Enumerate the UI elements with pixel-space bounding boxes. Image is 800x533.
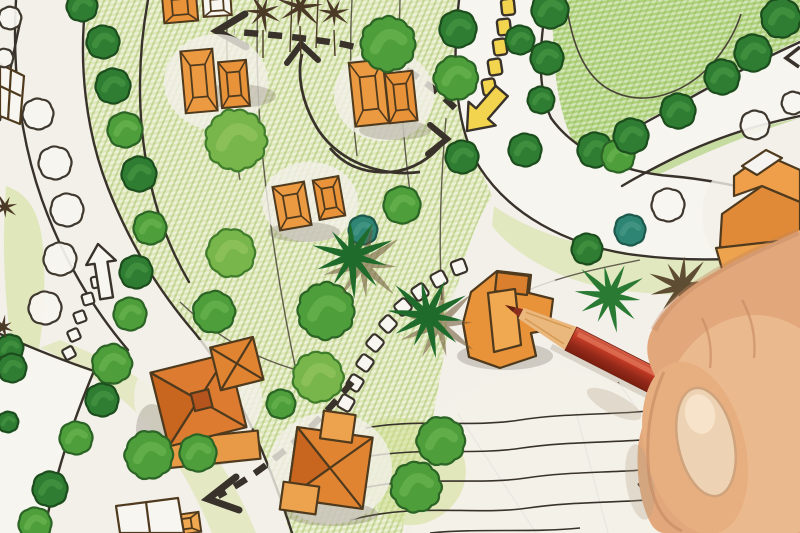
house-a2 bbox=[218, 60, 250, 108]
tree-outline-symbol bbox=[28, 291, 61, 324]
yellow-dash bbox=[487, 58, 502, 76]
tree-symbol bbox=[528, 87, 555, 114]
yellow-dash bbox=[501, 0, 516, 16]
tree-symbol bbox=[32, 471, 67, 506]
house-c2 bbox=[313, 176, 346, 220]
tree-symbol bbox=[433, 56, 478, 100]
tree-symbol bbox=[704, 59, 739, 94]
tree-symbol bbox=[267, 390, 296, 419]
tree-symbol bbox=[571, 233, 602, 264]
house-top-edge bbox=[162, 0, 198, 23]
tree-symbol bbox=[383, 186, 420, 223]
tree-symbol bbox=[95, 68, 130, 103]
tree-outline-symbol bbox=[741, 111, 770, 140]
house-top-edge-outline bbox=[202, 0, 231, 17]
tree-symbol bbox=[0, 354, 26, 383]
tree-symbol bbox=[445, 140, 478, 173]
paver-square bbox=[450, 258, 468, 276]
tree-symbol bbox=[734, 34, 771, 71]
tree-symbol bbox=[530, 41, 563, 74]
tree-symbol bbox=[121, 156, 156, 191]
tree-symbol bbox=[613, 118, 648, 153]
tree-symbol bbox=[66, 0, 97, 22]
house-b2 bbox=[384, 71, 417, 124]
tree-symbol bbox=[119, 255, 152, 288]
tree-symbol bbox=[506, 26, 535, 55]
tree-symbol bbox=[133, 211, 166, 244]
building-outline-left bbox=[0, 64, 24, 124]
tree-outline-symbol bbox=[43, 242, 76, 275]
tree-symbol bbox=[761, 0, 800, 38]
tree-outline-symbol bbox=[0, 7, 21, 30]
tree-symbol bbox=[360, 16, 415, 72]
tree-symbol bbox=[113, 297, 146, 330]
tree-symbol bbox=[86, 25, 119, 58]
tree-symbol bbox=[293, 352, 344, 403]
tree-symbol bbox=[18, 507, 51, 533]
tree-symbol bbox=[508, 133, 541, 166]
site-plan-photo bbox=[0, 0, 800, 533]
tree-symbol bbox=[107, 112, 142, 147]
tree-symbol bbox=[391, 462, 442, 513]
tree-symbol bbox=[206, 229, 255, 277]
paver-square bbox=[73, 310, 87, 324]
tree-symbol bbox=[0, 412, 18, 433]
tree-outline-symbol bbox=[651, 188, 684, 221]
tree-symbol bbox=[179, 434, 216, 471]
tree-symbol bbox=[124, 431, 173, 479]
tree-symbol bbox=[85, 383, 118, 416]
tree-symbol bbox=[660, 93, 695, 128]
paver-square bbox=[81, 292, 95, 306]
tree-outline-symbol bbox=[0, 49, 13, 68]
tree-outline-symbol bbox=[22, 98, 53, 129]
tree-outline-symbol bbox=[782, 92, 800, 115]
house-c1 bbox=[272, 182, 311, 231]
tree-outline-symbol bbox=[38, 146, 71, 179]
tree-symbol bbox=[92, 344, 132, 384]
landscape-site-plan-drawing bbox=[0, 0, 800, 533]
house-a1 bbox=[180, 49, 217, 114]
tree-symbol bbox=[439, 10, 476, 47]
tree-symbol bbox=[59, 421, 92, 454]
tree-outline-symbol bbox=[50, 193, 83, 226]
tree-symbol bbox=[531, 0, 568, 29]
tree-symbol bbox=[193, 291, 235, 333]
tree-symbol bbox=[614, 214, 645, 245]
tree-symbol bbox=[416, 417, 465, 465]
